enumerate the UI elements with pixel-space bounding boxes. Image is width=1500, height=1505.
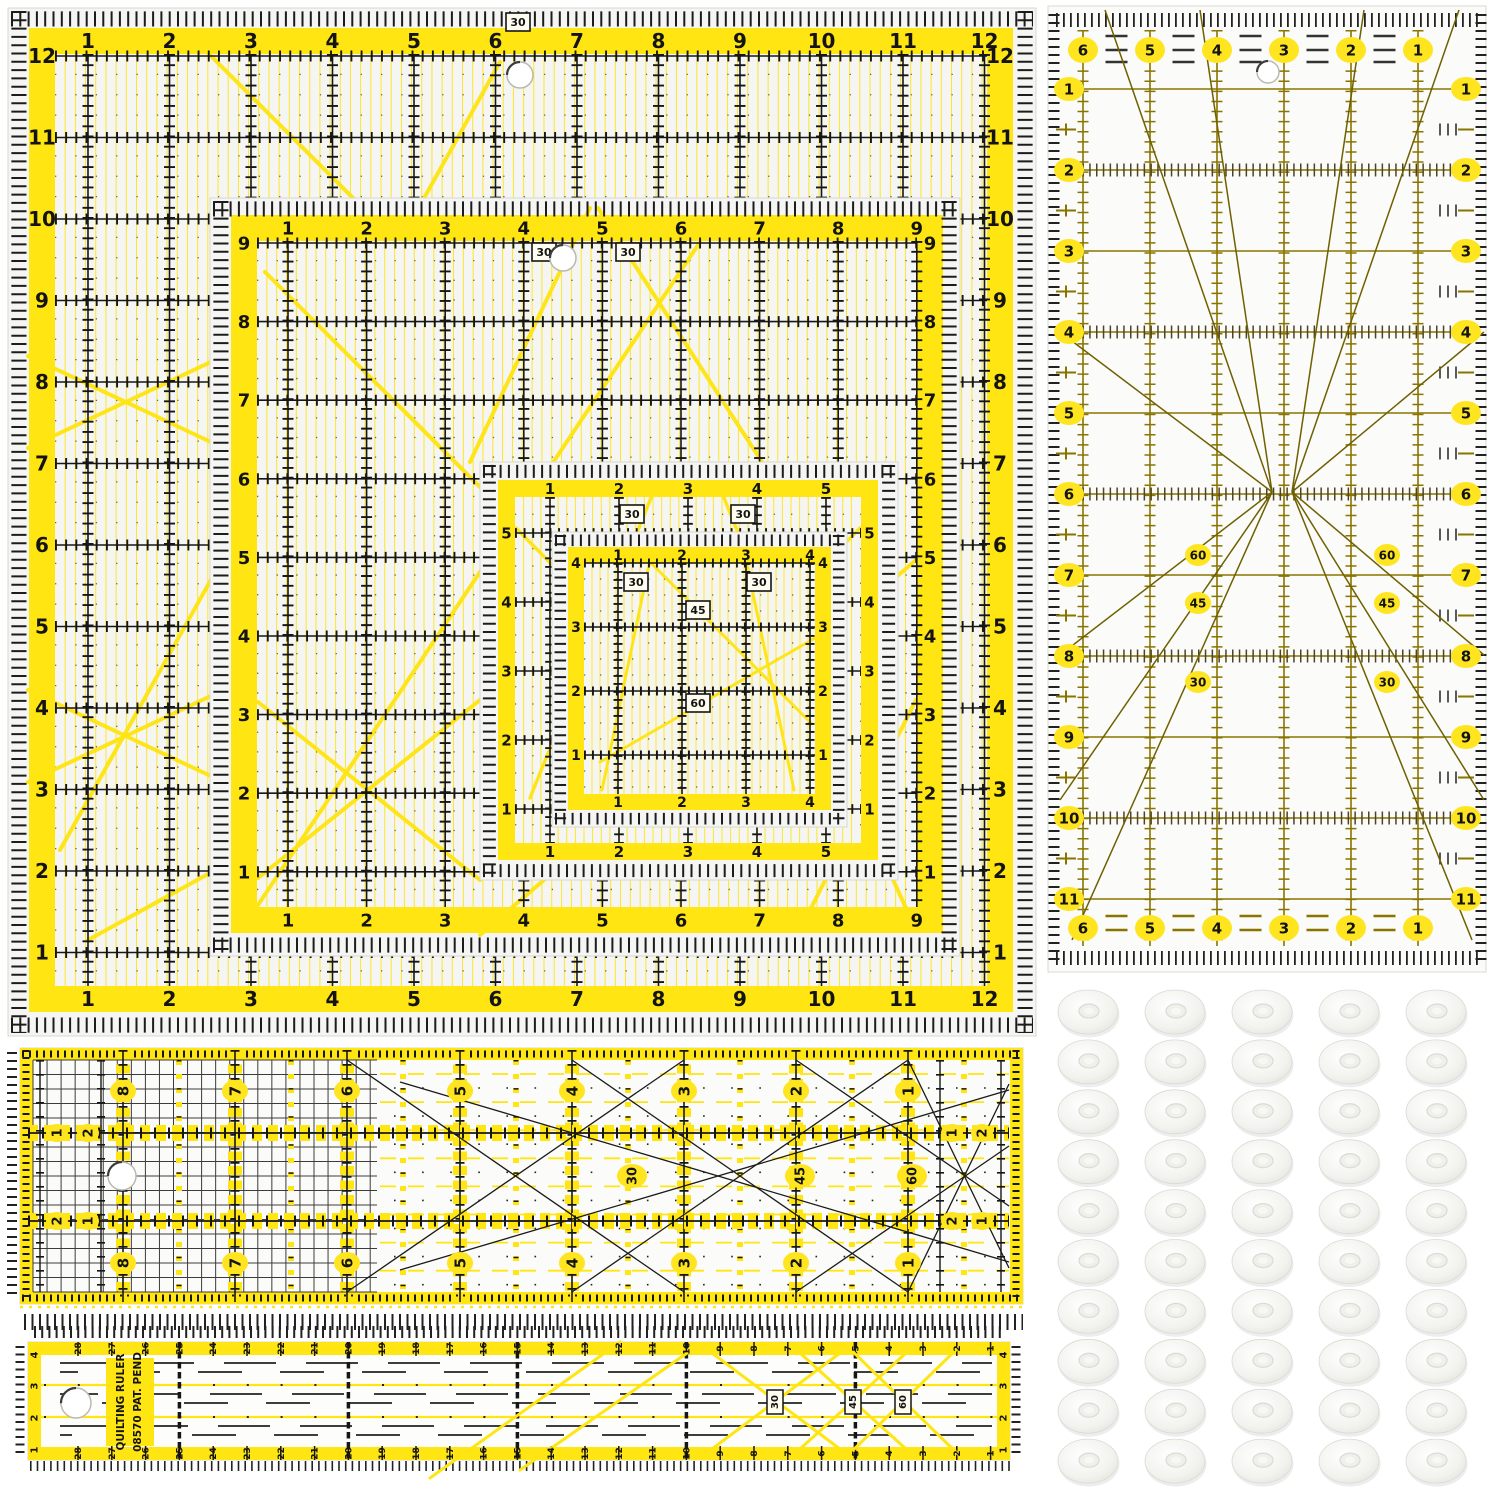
svg-text:16: 16 <box>480 1447 490 1460</box>
svg-text:3: 3 <box>741 795 751 811</box>
number-badge: 4 <box>1054 320 1084 344</box>
svg-text:9: 9 <box>35 289 49 313</box>
svg-text:2: 2 <box>30 1414 41 1421</box>
grip-disc <box>1058 1090 1120 1138</box>
number-badge: 1 <box>1451 77 1481 101</box>
svg-text:2: 2 <box>976 1128 991 1137</box>
svg-text:9: 9 <box>238 233 251 254</box>
svg-text:45: 45 <box>848 1395 859 1409</box>
grip-disc <box>1145 1439 1207 1487</box>
svg-text:2: 2 <box>238 784 251 805</box>
svg-text:5: 5 <box>851 1450 861 1456</box>
svg-text:45: 45 <box>794 1167 809 1185</box>
svg-text:1: 1 <box>82 1216 97 1225</box>
svg-text:2: 2 <box>1346 41 1356 59</box>
long-ruler-30: 2828272726262525242423232222212120201919… <box>20 1332 1016 1478</box>
svg-text:6: 6 <box>924 469 937 490</box>
svg-text:1: 1 <box>924 862 937 883</box>
grip-disc <box>1232 1439 1294 1487</box>
grip-disc <box>1406 1140 1468 1188</box>
number-badge: 30 <box>1185 671 1211 693</box>
svg-text:1: 1 <box>51 1128 66 1137</box>
svg-text:2: 2 <box>1346 919 1356 937</box>
number-badge: 1 <box>77 1212 99 1230</box>
svg-text:5: 5 <box>451 1086 469 1096</box>
grip-disc <box>1406 1289 1468 1337</box>
number-badge: 7 <box>222 1252 248 1274</box>
angle-label-box: 45 <box>686 601 710 619</box>
svg-text:6: 6 <box>338 1258 356 1268</box>
svg-text:1: 1 <box>899 1258 917 1268</box>
svg-text:3: 3 <box>571 620 581 636</box>
svg-text:3: 3 <box>1279 41 1289 59</box>
svg-text:1: 1 <box>613 548 623 564</box>
number-badge: 1 <box>1403 37 1433 63</box>
number-badge: 5 <box>447 1080 473 1102</box>
grip-disc <box>1406 1090 1468 1138</box>
svg-text:6: 6 <box>818 1450 828 1456</box>
svg-text:3: 3 <box>818 620 828 636</box>
svg-text:5: 5 <box>1064 404 1074 422</box>
svg-text:2: 2 <box>953 1450 963 1456</box>
svg-text:4: 4 <box>805 548 815 564</box>
svg-text:4: 4 <box>752 843 762 861</box>
grip-disc <box>1145 1339 1207 1387</box>
svg-text:3: 3 <box>439 218 452 239</box>
svg-text:3: 3 <box>244 29 258 53</box>
svg-text:25: 25 <box>175 1342 185 1355</box>
svg-text:1: 1 <box>30 1446 41 1453</box>
svg-text:30: 30 <box>1190 675 1207 689</box>
number-badge: 3 <box>671 1252 697 1274</box>
svg-text:30: 30 <box>770 1395 781 1409</box>
svg-text:3: 3 <box>919 1450 929 1456</box>
svg-text:2: 2 <box>614 480 624 498</box>
grip-disc <box>1319 1190 1381 1238</box>
svg-text:7: 7 <box>993 452 1007 476</box>
svg-text:QUILTING RULER: QUILTING RULER <box>115 1353 127 1450</box>
number-badge: 1 <box>1403 915 1433 941</box>
number-badge: 2 <box>971 1124 993 1142</box>
svg-text:9: 9 <box>1064 728 1074 746</box>
svg-text:4: 4 <box>518 218 531 239</box>
grip-disc <box>1145 1389 1207 1437</box>
svg-text:4: 4 <box>501 593 511 611</box>
svg-text:2: 2 <box>993 859 1007 883</box>
grip-disc <box>1406 1040 1468 1088</box>
svg-text:9: 9 <box>993 289 1007 313</box>
svg-text:3: 3 <box>244 987 258 1011</box>
svg-text:8: 8 <box>924 312 937 333</box>
svg-text:3: 3 <box>1461 242 1471 260</box>
svg-text:10: 10 <box>28 207 56 231</box>
svg-text:7: 7 <box>226 1086 244 1096</box>
svg-text:18: 18 <box>412 1447 422 1460</box>
svg-text:60: 60 <box>906 1167 921 1185</box>
angle-label-box: 60 <box>895 1390 911 1414</box>
svg-text:6: 6 <box>338 1086 356 1096</box>
svg-text:1: 1 <box>613 795 623 811</box>
svg-text:4: 4 <box>238 626 251 647</box>
svg-text:4: 4 <box>805 795 815 811</box>
number-badge: 5 <box>447 1252 473 1274</box>
svg-text:4: 4 <box>885 1345 895 1351</box>
svg-text:7: 7 <box>238 391 251 412</box>
number-badge: 2 <box>783 1080 809 1102</box>
svg-text:3: 3 <box>30 1382 41 1389</box>
number-badge: 8 <box>1054 644 1084 668</box>
svg-text:11: 11 <box>986 126 1014 150</box>
number-badge: 5 <box>1135 915 1165 941</box>
grip-disc <box>1145 990 1207 1038</box>
svg-text:2: 2 <box>677 795 687 811</box>
svg-text:1: 1 <box>999 1446 1010 1453</box>
number-badge: 45 <box>785 1164 815 1188</box>
svg-text:1: 1 <box>946 1128 961 1137</box>
svg-text:2: 2 <box>818 684 828 700</box>
svg-text:5: 5 <box>1145 41 1155 59</box>
number-badge: 2 <box>77 1124 99 1142</box>
svg-text:1: 1 <box>238 862 251 883</box>
number-badge: 30 <box>617 1164 647 1188</box>
svg-text:4: 4 <box>999 1351 1010 1358</box>
grip-disc <box>1232 1140 1294 1188</box>
svg-text:4: 4 <box>1461 323 1471 341</box>
svg-text:3: 3 <box>501 662 511 680</box>
svg-text:12: 12 <box>971 987 999 1011</box>
svg-text:4: 4 <box>326 29 340 53</box>
svg-text:1: 1 <box>864 800 874 818</box>
number-badge: 45 <box>1185 592 1211 614</box>
svg-text:7: 7 <box>570 29 584 53</box>
svg-text:6: 6 <box>489 987 503 1011</box>
svg-text:10: 10 <box>1059 809 1080 827</box>
number-badge: 2 <box>1054 158 1084 182</box>
grip-disc <box>1058 1190 1120 1238</box>
number-badge: 3 <box>1269 915 1299 941</box>
svg-text:3: 3 <box>993 778 1007 802</box>
svg-text:9: 9 <box>911 218 924 239</box>
svg-text:5: 5 <box>821 843 831 861</box>
svg-text:11: 11 <box>28 126 56 150</box>
rect-ruler-6x12-inch: 6543216543211234567891011123456789101160… <box>1048 6 1486 972</box>
grip-disc <box>1232 1090 1294 1138</box>
svg-text:7: 7 <box>35 452 49 476</box>
svg-text:10: 10 <box>808 987 836 1011</box>
svg-text:23: 23 <box>243 1342 253 1355</box>
number-badge: 6 <box>1451 482 1481 506</box>
grip-disc <box>1319 990 1381 1038</box>
svg-text:7: 7 <box>784 1345 794 1351</box>
svg-text:15: 15 <box>513 1447 523 1460</box>
svg-text:5: 5 <box>851 1345 861 1351</box>
number-badge: 10 <box>1054 806 1084 830</box>
grip-disc <box>1145 1289 1207 1337</box>
svg-text:5: 5 <box>451 1258 469 1268</box>
svg-text:2: 2 <box>163 987 177 1011</box>
svg-text:24: 24 <box>209 1342 219 1355</box>
svg-text:8: 8 <box>114 1086 132 1096</box>
svg-text:9: 9 <box>733 29 747 53</box>
number-badge: 11 <box>1451 887 1481 911</box>
svg-text:5: 5 <box>864 524 874 542</box>
svg-text:27: 27 <box>108 1342 118 1355</box>
svg-text:10: 10 <box>1456 809 1477 827</box>
grip-disc <box>1145 1240 1207 1288</box>
svg-text:2: 2 <box>924 784 937 805</box>
number-badge: 4 <box>559 1252 585 1274</box>
number-badge: 7 <box>222 1080 248 1102</box>
svg-text:4: 4 <box>30 1351 41 1358</box>
svg-text:12: 12 <box>28 44 56 68</box>
svg-text:21: 21 <box>311 1447 321 1460</box>
svg-text:4: 4 <box>35 696 49 720</box>
svg-text:5: 5 <box>1461 404 1471 422</box>
svg-text:6: 6 <box>675 218 688 239</box>
number-badge: 11 <box>1054 887 1084 911</box>
svg-text:1: 1 <box>987 1450 997 1456</box>
grip-disc <box>1058 1140 1120 1188</box>
grip-disc <box>1232 1389 1294 1437</box>
number-badge: 10 <box>1451 806 1481 830</box>
svg-text:30: 30 <box>624 508 640 521</box>
number-badge: 3 <box>1451 239 1481 263</box>
number-badge: 1 <box>46 1124 68 1142</box>
svg-text:6: 6 <box>35 533 49 557</box>
svg-text:3: 3 <box>1064 242 1074 260</box>
svg-text:19: 19 <box>378 1342 388 1355</box>
svg-text:28: 28 <box>74 1342 84 1355</box>
svg-text:13: 13 <box>581 1447 591 1460</box>
svg-text:60: 60 <box>690 697 706 710</box>
svg-text:5: 5 <box>596 910 609 931</box>
svg-text:4: 4 <box>518 910 531 931</box>
svg-text:12: 12 <box>615 1447 625 1460</box>
number-badge: 8 <box>1451 644 1481 668</box>
grip-disc <box>1058 1339 1120 1387</box>
svg-text:11: 11 <box>1456 890 1477 908</box>
svg-text:60: 60 <box>1190 548 1207 562</box>
svg-text:2: 2 <box>501 731 511 749</box>
svg-text:2: 2 <box>1461 161 1471 179</box>
svg-text:2: 2 <box>787 1258 805 1268</box>
number-badge: 45 <box>1374 592 1400 614</box>
svg-text:16: 16 <box>480 1342 490 1355</box>
svg-text:4: 4 <box>1212 919 1222 937</box>
svg-text:2: 2 <box>571 684 581 700</box>
svg-text:7: 7 <box>226 1258 244 1268</box>
number-badge: 7 <box>1451 563 1481 587</box>
svg-text:30: 30 <box>510 16 526 29</box>
svg-text:10: 10 <box>986 207 1014 231</box>
grip-disc <box>1406 1240 1468 1288</box>
svg-text:7: 7 <box>1461 566 1471 584</box>
svg-text:1: 1 <box>1064 80 1074 98</box>
svg-text:21: 21 <box>311 1342 321 1355</box>
svg-text:22: 22 <box>277 1342 287 1355</box>
svg-text:1: 1 <box>501 800 511 818</box>
svg-text:60: 60 <box>898 1395 909 1409</box>
svg-text:6: 6 <box>1078 919 1088 937</box>
number-badge: 3 <box>1269 37 1299 63</box>
grip-disc <box>1145 1190 1207 1238</box>
grip-disc <box>1406 1190 1468 1238</box>
svg-text:17: 17 <box>446 1342 456 1355</box>
number-badge: 3 <box>1054 239 1084 263</box>
number-badge: 1 <box>971 1212 993 1230</box>
svg-text:4: 4 <box>1212 41 1222 59</box>
svg-text:5: 5 <box>993 615 1007 639</box>
svg-text:45: 45 <box>1379 596 1396 610</box>
svg-text:30: 30 <box>735 508 751 521</box>
svg-text:2: 2 <box>946 1216 961 1225</box>
svg-text:11: 11 <box>889 987 917 1011</box>
svg-text:13: 13 <box>581 1342 591 1355</box>
svg-text:4: 4 <box>885 1450 895 1456</box>
svg-text:30: 30 <box>751 576 767 589</box>
number-badge: 6 <box>334 1252 360 1274</box>
grip-disc <box>1319 1439 1381 1487</box>
svg-text:8: 8 <box>832 218 845 239</box>
number-badge: 3 <box>671 1080 697 1102</box>
svg-text:15: 15 <box>513 1342 523 1355</box>
svg-text:4: 4 <box>924 626 937 647</box>
number-badge: 2 <box>783 1252 809 1274</box>
grip-disc <box>1058 1389 1120 1437</box>
collage-canvas: 1234567891011121234567891011121211109876… <box>0 0 1500 1500</box>
svg-text:1: 1 <box>1413 41 1423 59</box>
number-badge: 8 <box>110 1080 136 1102</box>
grip-disc <box>1319 1090 1381 1138</box>
svg-text:4: 4 <box>1064 323 1074 341</box>
angle-label-box: 30 <box>506 13 530 31</box>
svg-text:4: 4 <box>818 556 828 572</box>
grip-disc <box>1406 1389 1468 1437</box>
svg-text:10: 10 <box>682 1342 692 1355</box>
svg-text:2: 2 <box>82 1128 97 1137</box>
svg-text:6: 6 <box>1078 41 1088 59</box>
svg-text:7: 7 <box>753 910 766 931</box>
svg-text:7: 7 <box>753 218 766 239</box>
svg-text:11: 11 <box>649 1447 659 1460</box>
grip-disc <box>1058 1289 1120 1337</box>
svg-text:7: 7 <box>924 391 937 412</box>
svg-text:2: 2 <box>999 1414 1010 1421</box>
svg-text:3: 3 <box>919 1345 929 1351</box>
grip-disc <box>1406 990 1468 1038</box>
svg-text:8: 8 <box>652 29 666 53</box>
svg-text:6: 6 <box>1064 485 1074 503</box>
number-badge: 2 <box>1336 37 1366 63</box>
svg-text:12: 12 <box>986 44 1014 68</box>
svg-text:5: 5 <box>596 218 609 239</box>
svg-text:30: 30 <box>628 576 644 589</box>
svg-text:9: 9 <box>716 1450 726 1456</box>
grip-disc <box>1232 1240 1294 1288</box>
svg-text:30: 30 <box>620 246 636 259</box>
svg-text:7: 7 <box>570 987 584 1011</box>
number-badge: 6 <box>1068 915 1098 941</box>
svg-text:4: 4 <box>326 987 340 1011</box>
number-badge: 1 <box>941 1124 963 1142</box>
svg-text:10: 10 <box>808 29 836 53</box>
svg-text:8: 8 <box>35 370 49 394</box>
svg-text:6: 6 <box>1461 485 1471 503</box>
svg-text:2: 2 <box>360 218 373 239</box>
number-badge: 5 <box>1451 401 1481 425</box>
svg-text:19: 19 <box>378 1447 388 1460</box>
number-badge: 60 <box>1185 544 1211 566</box>
number-badge: 8 <box>110 1252 136 1274</box>
svg-text:2: 2 <box>1064 161 1074 179</box>
angle-label-box: 30 <box>767 1390 783 1414</box>
grip-disc <box>1319 1140 1381 1188</box>
svg-text:23: 23 <box>243 1447 253 1460</box>
grip-disc <box>1319 1389 1381 1437</box>
number-badge: 2 <box>1451 158 1481 182</box>
svg-text:10: 10 <box>682 1447 692 1460</box>
svg-text:8: 8 <box>1064 647 1074 665</box>
grip-disc <box>1058 1240 1120 1288</box>
svg-text:3: 3 <box>238 705 251 726</box>
svg-text:11: 11 <box>889 29 917 53</box>
svg-text:45: 45 <box>690 604 705 617</box>
svg-text:5: 5 <box>1145 919 1155 937</box>
brand-label: QUILTING RULER08570 PAT. PEND <box>106 1352 154 1452</box>
svg-text:20: 20 <box>344 1447 354 1460</box>
svg-text:2: 2 <box>360 910 373 931</box>
svg-text:5: 5 <box>407 987 421 1011</box>
svg-text:9: 9 <box>716 1345 726 1351</box>
number-badge: 60 <box>897 1164 927 1188</box>
angle-label-box: 30 <box>616 243 640 261</box>
number-badge: 1 <box>1054 77 1084 101</box>
grip-disc <box>1145 1090 1207 1138</box>
svg-text:4: 4 <box>993 696 1007 720</box>
svg-text:4: 4 <box>563 1086 581 1096</box>
grip-disc <box>1319 1339 1381 1387</box>
svg-text:11: 11 <box>1059 890 1080 908</box>
svg-text:20: 20 <box>344 1342 354 1355</box>
svg-text:6: 6 <box>818 1345 828 1351</box>
svg-text:1: 1 <box>282 910 295 931</box>
svg-text:8: 8 <box>652 987 666 1011</box>
number-badge: 6 <box>1054 482 1084 506</box>
svg-text:1: 1 <box>987 1345 997 1351</box>
svg-text:5: 5 <box>501 524 511 542</box>
grip-disc <box>1232 990 1294 1038</box>
svg-text:1: 1 <box>571 748 581 764</box>
svg-text:2: 2 <box>787 1086 805 1096</box>
grip-disc <box>1319 1040 1381 1088</box>
svg-text:14: 14 <box>547 1342 557 1355</box>
number-badge: 2 <box>1336 915 1366 941</box>
svg-text:8: 8 <box>114 1258 132 1268</box>
svg-text:8: 8 <box>750 1450 760 1456</box>
svg-text:3: 3 <box>741 548 751 564</box>
svg-text:45: 45 <box>1190 596 1207 610</box>
svg-text:3: 3 <box>924 705 937 726</box>
number-badge: 6 <box>1068 37 1098 63</box>
svg-text:3: 3 <box>675 1258 693 1268</box>
svg-text:7: 7 <box>1064 566 1074 584</box>
number-badge: 4 <box>1202 915 1232 941</box>
svg-text:3: 3 <box>1279 919 1289 937</box>
number-badge: 5 <box>1135 37 1165 63</box>
svg-text:3: 3 <box>35 778 49 802</box>
square-ruler-4-inch: 123412344321432130304560 <box>552 532 847 827</box>
svg-text:17: 17 <box>446 1447 456 1460</box>
